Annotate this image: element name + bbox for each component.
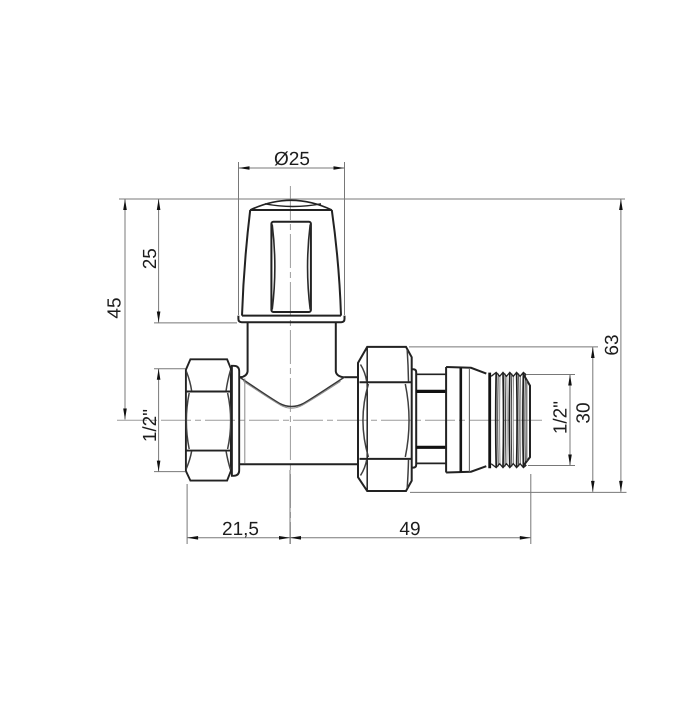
- svg-text:45: 45: [105, 297, 126, 318]
- svg-text:63: 63: [602, 334, 623, 355]
- svg-text:1/2": 1/2": [140, 409, 161, 442]
- svg-text:21,5: 21,5: [222, 519, 259, 540]
- svg-text:49: 49: [399, 519, 420, 540]
- svg-text:30: 30: [574, 402, 595, 423]
- svg-text:1/2": 1/2": [551, 401, 572, 434]
- svg-text:25: 25: [140, 248, 161, 269]
- svg-text:Ø25: Ø25: [274, 149, 310, 170]
